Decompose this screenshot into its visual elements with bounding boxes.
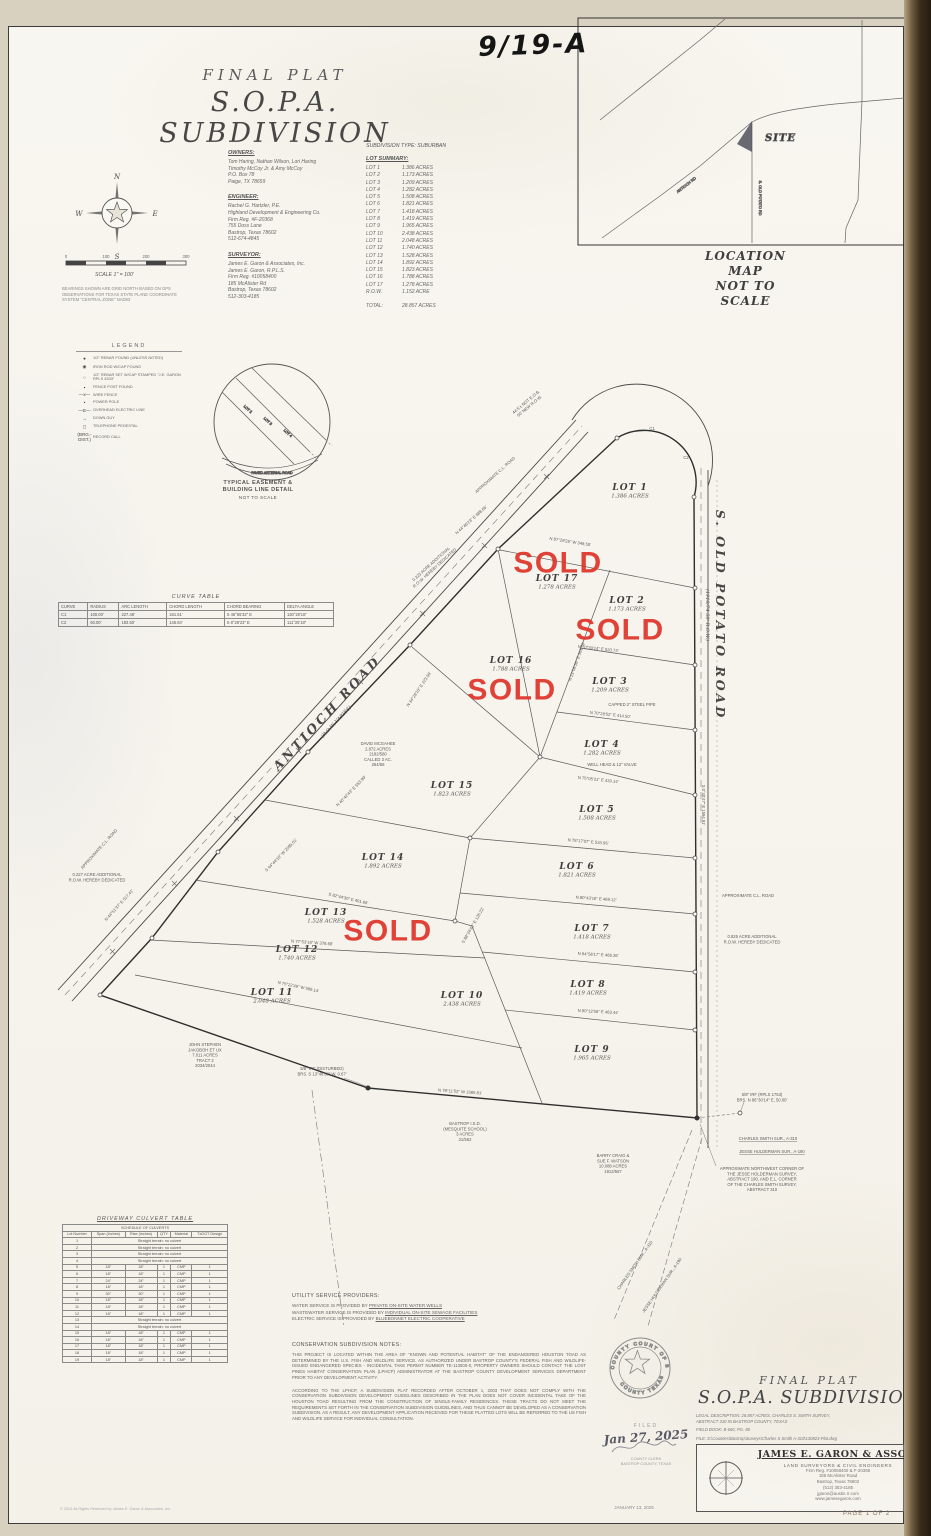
map-road-label: ANTIOCH RD <box>676 176 697 194</box>
legend-label: RECORD CALL <box>93 435 121 440</box>
curve-cell: 145.84' <box>167 619 224 627</box>
lot-summary-acres: 1.278 ACRES <box>402 282 486 289</box>
plat-annotation: DAVID MCGAHEE2.872 ACRES2182/580CALLED 3… <box>361 741 396 767</box>
culvert-cell: 18" <box>125 1343 157 1350</box>
culvert-lot-cell: 14 <box>63 1323 92 1330</box>
culvert-row: 618"18"1CMP1 <box>63 1271 228 1278</box>
utility-text: WATER SERVICE IS PROVIDED BY <box>292 1303 369 1308</box>
plat-annotation-line: 5/8" IRF (RPLS 1753) <box>742 1092 783 1097</box>
map-road-labels: ANTIOCH RDS. OLD POTATO RD <box>676 176 762 216</box>
lot-summary-row: LOT 121.740 ACRES <box>366 245 486 252</box>
utility-provider: INDIVIDUAL ON-SITE SEWAGE FACILITIES <box>385 1310 477 1315</box>
plat-annotation: 0.323 ACRE ADDITIONALR.O.W. HEREBY DEDIC… <box>408 543 457 589</box>
location-map-caption: LOCATION MAP NOT TO SCALE <box>688 249 803 309</box>
culvert-cell: 18" <box>125 1356 157 1363</box>
plat-annotation: APPROXIMATE C.L. ROAD <box>474 456 516 495</box>
culvert-cell: CMP <box>171 1330 192 1337</box>
lot-summary-lot: LOT 15 <box>366 267 402 274</box>
culvert-row: 1218"18"1CMP1 <box>63 1310 228 1317</box>
info-line: Tom Haring, Nathan Wilson, Lori Haring <box>228 159 368 166</box>
lot-summary-row: LOT 91.965 ACRES <box>366 223 486 230</box>
culvert-cell: 1 <box>192 1343 228 1350</box>
plat-annotation: 5/8" IRF (DISTURBED)BRS. S 13°48'58" W, … <box>298 1066 347 1076</box>
legend-symbol-icon: → <box>76 416 93 421</box>
legend-label: OVERHEAD ELECTRIC LINE <box>93 408 145 413</box>
plat-annotation-line: (MESQUITE SCHOOL) <box>443 1126 487 1131</box>
lot-summary-rows: LOT 11.386 ACRESLOT 21.173 ACRESLOT 31.2… <box>366 165 486 296</box>
curve-cell: S 46°55'32" E <box>224 611 284 619</box>
plat-annotation-line: 0.825 ACRE ADDITIONAL <box>727 934 777 939</box>
info-line: 512-303-4185 <box>228 294 368 301</box>
page-number: PAGE 1 OF 2 <box>843 1511 890 1517</box>
detail-lot-label: LOT 3 <box>263 416 273 426</box>
curve-cell: C1 <box>59 611 88 619</box>
lot-name: LOT 10 <box>440 991 484 1001</box>
plat-annotation-line: JOHN STEPHEN <box>189 1042 221 1047</box>
culvert-cell: 18" <box>125 1310 157 1317</box>
engineer-section: ENGINEER: Rachel G. Hartzler, P.E.Highla… <box>228 194 368 243</box>
culvert-cell: 18" <box>125 1304 157 1311</box>
lot-summary-lot: LOT 2 <box>366 172 402 179</box>
plat-annotation-line: APPROXIMATE C.L. ROAD <box>80 828 119 870</box>
plat-annotation-line: R.O.W. HEREBY DEDICATED <box>412 547 458 589</box>
culvert-table: DRIVEWAY CULVERT TABLE SCHEDULE OF CULVE… <box>62 1216 228 1363</box>
legend-item: ●1/2" REBAR FOUND (UNLESS NOTED) <box>76 356 182 361</box>
surveyor-heading: SURVEYOR: <box>228 252 368 258</box>
plat-annotation-line: APPROXIMATE C.L. ROAD <box>722 893 774 898</box>
culvert-row: 518"18"1CMP1 <box>63 1264 228 1271</box>
lot-name: LOT 13 <box>304 908 348 918</box>
plat-annotation: BARRY CRAIG &SUE F. WATSON10.088 ACRES19… <box>597 1153 630 1174</box>
compass-e: E <box>151 210 157 218</box>
plat-annotation-line: 2182/580 <box>369 752 387 757</box>
curve-cell: 183.50' <box>119 619 167 627</box>
culvert-lot-cell: 8 <box>63 1284 92 1291</box>
road-name: ANTIOCH ROAD <box>269 653 384 774</box>
lot-acreage: 2.438 ACRES <box>442 1002 481 1008</box>
info-line: James E. Garon, R.P.L.S. <box>228 268 368 275</box>
lot-summary-acres: 1.209 ACRES <box>402 180 486 187</box>
culvert-cell: 18" <box>125 1271 157 1278</box>
culvert-cell: CMP <box>171 1297 192 1304</box>
plat-annotation-line: BARRY CRAIG & <box>597 1153 630 1158</box>
lot-summary-lot: LOT 12 <box>366 245 402 252</box>
culvert-cell: 1 <box>157 1277 171 1284</box>
detail-lot-label: LOT 4 <box>283 428 293 438</box>
culvert-cell: 1 <box>192 1284 228 1291</box>
plat-annotation: CAPPED 2" STEEL PIPE <box>608 702 655 707</box>
legend-title: LEGEND <box>76 343 182 352</box>
lot-summary-acres: 1.282 ACRES <box>402 187 486 194</box>
curve-cell: C2 <box>59 619 88 627</box>
lot-summary-row: LOT 131.528 ACRES <box>366 253 486 260</box>
plat-annotation-line: CHARLES SMITH SUR., A-310 <box>616 1239 654 1290</box>
info-line: James E. Garon & Associates, Inc. <box>228 261 368 268</box>
lot-acreage: 2.048 ACRES <box>252 999 291 1005</box>
lot-summary-lot: LOT 17 <box>366 282 402 289</box>
culvert-header-cell: Lot Number <box>63 1231 92 1238</box>
curve-header-cell: DELTA ANGLE <box>285 603 334 611</box>
subdivision-type: SUBDIVISION TYPE: SUBURBAN <box>366 143 486 149</box>
lot-summary-lot: LOT 10 <box>366 231 402 238</box>
bearing-basis-note: BEARINGS SHOWN ARE GRID NORTH BASED ON G… <box>62 286 190 303</box>
plat-annotation-line: CALLED 3 AC. <box>364 757 392 762</box>
total-label: TOTAL: <box>366 303 402 310</box>
plat-annotation: 0.227 ACRE ADDITIONALR.O.W. HEREBY DEDIC… <box>69 872 126 882</box>
info-line: Highland Development & Engineering Co. <box>228 210 368 217</box>
curve-header-cell: CHORD LENGTH <box>167 603 224 611</box>
culvert-cell: 1 <box>157 1271 171 1278</box>
legend-label: 1/2" REBAR SET W/CAP STAMPED "J.E. GARON… <box>93 373 182 382</box>
lot-name: LOT 4 <box>583 740 619 750</box>
culvert-cell: 18" <box>92 1356 126 1363</box>
info-line: Bastrop, Texas 78602 <box>228 230 368 237</box>
scale-tick-label: 200 <box>143 254 151 259</box>
lot-summary-heading: LOT SUMMARY: <box>366 156 486 162</box>
culvert-cell: 24" <box>92 1277 126 1284</box>
culvert-cell: 18" <box>92 1304 126 1311</box>
culvert-cell: 18" <box>92 1310 126 1317</box>
lot-acreage: 1.418 ACRES <box>573 935 611 941</box>
plat-annotation-line: APPROXIMATE NORTHWEST CORNER OF <box>720 1166 805 1171</box>
plat-annotation-line: BRS. N 86°30'14" E, 50.00' <box>737 1097 788 1102</box>
culvert-cell: 1 <box>192 1350 228 1357</box>
lot-summary-row: LOT 51.508 ACRES <box>366 194 486 201</box>
bearing-label: N 34°28'15" E 223.58' <box>405 671 432 708</box>
owners-heading: OWNERS: <box>228 150 368 156</box>
curve-cell: 130°20'16" <box>285 611 334 619</box>
plat-annotation-line: JESSE HULDERMAN SUR., A-190 <box>641 1256 683 1313</box>
culvert-cell: 1 <box>192 1297 228 1304</box>
title-block-bottom: FINAL PLAT S.O.P.A. SUBDIVISION LEGAL DE… <box>696 1374 922 1512</box>
culvert-header-cell: Material <box>171 1231 192 1238</box>
culvert-row: 1618"18"1CMP1 <box>63 1337 228 1344</box>
lot-summary-lot: LOT 6 <box>366 201 402 208</box>
culvert-cell: 1 <box>192 1356 228 1363</box>
lot-name: LOT 7 <box>573 924 609 934</box>
road-row-note: (1910/74 50' R.O.W.) <box>704 589 711 641</box>
culvert-row: 724"24"1CMP1 <box>63 1277 228 1284</box>
plat-annotation: CHARLES SMITH SUR., A-310 <box>739 1136 798 1141</box>
legend-symbol-icon: —x— <box>76 392 93 397</box>
lot-summary-lot: LOT 5 <box>366 194 402 201</box>
culvert-cell: 1 <box>157 1337 171 1344</box>
lot-summary-lot: LOT 16 <box>366 274 402 281</box>
plat-annotation: APPROXIMATE NORTHWEST CORNER OFTHE JESSE… <box>720 1166 805 1192</box>
culvert-cell: 18" <box>92 1343 126 1350</box>
utility-line: ELECTRIC SERVICE IS PROVIDED BY BLUEBONN… <box>292 1316 584 1323</box>
culvert-lot-cell: 9 <box>63 1290 92 1297</box>
utility-provider: BLUEBONNET ELECTRIC COOPERATIVE <box>376 1316 465 1321</box>
compass-w: W <box>75 210 83 218</box>
legend-item: ▪FENCE POST FOUND <box>76 385 182 390</box>
legend-symbol-icon: ◉ <box>76 364 93 370</box>
bearing-label: S 88°24'43" E 126.22' <box>460 906 485 944</box>
culvert-cell: 18" <box>125 1297 157 1304</box>
culvert-cell: 1 <box>192 1337 228 1344</box>
road-curve-outer <box>572 384 713 486</box>
bearing-label: N 44°51'37" E 517.41' <box>103 888 134 922</box>
plat-annotation-line: ABSTRACT 310 <box>747 1187 778 1192</box>
legend-label: DOWN GUY <box>93 416 115 421</box>
lot-summary-acres: 1.152 ACRE <box>402 289 486 296</box>
curve-table-grid: CURVERADIUSARC LENGTHCHORD LENGTHCHORD B… <box>58 602 334 627</box>
culvert-cell: 24" <box>125 1277 157 1284</box>
conservation-paragraph-1: THIS PROJECT IS LOCATED WITHIN THE AREA … <box>292 1352 586 1381</box>
bearing-label: S 82°44'30" E 401.66' <box>328 892 369 906</box>
culvert-lot-cell: 18 <box>63 1350 92 1357</box>
curve-cell: 60.00' <box>88 619 119 627</box>
lot-acreage: 1.419 ACRES <box>569 991 607 997</box>
culvert-cell: 1 <box>157 1350 171 1357</box>
culvert-lot-cell: 3 <box>63 1251 92 1258</box>
plat-annotation-line: JESSE HULDERMAN SUR., A-190 <box>739 1149 805 1154</box>
culvert-cell: CMP <box>171 1304 192 1311</box>
firm-logo-cell <box>697 1445 755 1511</box>
lot-name: LOT 9 <box>573 1045 609 1055</box>
plat-annotation-line: R.O.W. HEREBY DEDICATED <box>69 877 126 882</box>
legend-symbol-icon: (BRG.-DIST.) <box>76 432 93 442</box>
culvert-note-cell: Straight terrain: no culvert <box>92 1317 228 1324</box>
lot-summary-acres: 1.419 ACRES <box>402 216 486 223</box>
plat-annotation-line: 2034/2044 <box>195 1063 215 1068</box>
culvert-note-cell: Straight terrain: no culvert <box>92 1251 228 1258</box>
culvert-cell: 1 <box>157 1284 171 1291</box>
lot-summary-row: LOT 151.823 ACRES <box>366 267 486 274</box>
surveyor-firm-box: JAMES E. GARON & ASSOC. LAND SURVEYORS &… <box>696 1444 922 1512</box>
field-book: FIELD BOOK: B-660, PG. 80 <box>696 1427 922 1433</box>
lot-summary-row: LOT 11.386 ACRES <box>366 165 486 172</box>
compass-n: N <box>113 173 121 181</box>
plat-annotation-line: 264/68 <box>372 762 385 767</box>
culvert-lot-cell: 11 <box>63 1304 92 1311</box>
plat-annotation-line: 10.088 ACRES <box>599 1164 627 1169</box>
culvert-cell: 1 <box>157 1356 171 1363</box>
lot-summary-row: LOT 141.892 ACRES <box>366 260 486 267</box>
lot-summary-acres: 1.740 ACRES <box>402 245 486 252</box>
plat-annotation: JESSE HULDERMAN SUR., A-190 <box>739 1149 805 1154</box>
firm-info: JAMES E. GARON & ASSOC. LAND SURVEYORS &… <box>755 1445 921 1511</box>
culvert-lot-cell: 12 <box>63 1310 92 1317</box>
culvert-cell: 1 <box>157 1304 171 1311</box>
legend-items: ●1/2" REBAR FOUND (UNLESS NOTED)◉IRON RO… <box>76 356 182 442</box>
lot-summary-lot: LOT 3 <box>366 180 402 187</box>
culvert-row: 1118"18"1CMP1 <box>63 1304 228 1311</box>
plat-annotation-line: 0.227 ACRE ADDITIONAL <box>72 872 122 877</box>
culvert-cell: 1 <box>157 1310 171 1317</box>
info-line: Rachel G. Hartzler, P.E. <box>228 203 368 210</box>
curve-point-label: C2 <box>683 455 689 460</box>
lot-summary-lot: LOT 11 <box>366 238 402 245</box>
compass-rose: N S E W <box>75 173 157 261</box>
culvert-subtitle-row: SCHEDULE OF CULVERTS <box>63 1225 228 1232</box>
curve-cell: 227.48' <box>119 611 167 619</box>
legal-line-2: ABSTRACT 310 IN BASTROP COUNTY, TEXAS <box>696 1419 922 1425</box>
scale-caption: SCALE 1" = 100' <box>95 272 135 278</box>
legend-item: (BRG.-DIST.)RECORD CALL <box>76 432 182 442</box>
lot-acreage: 1.740 ACRES <box>278 956 316 962</box>
culvert-cell: 30" <box>92 1290 126 1297</box>
lot-summary-lot: LOT 8 <box>366 216 402 223</box>
copyright-note: © 2024 All Rights Reserved by James E. G… <box>60 1507 171 1511</box>
tb-final-plat: FINAL PLAT <box>696 1374 922 1387</box>
info-line: 185 McAlister Rd <box>228 281 368 288</box>
county-clerk-locale: BASTROP COUNTY, TEXAS <box>590 1461 702 1466</box>
culvert-lot-cell: 1 <box>63 1238 92 1245</box>
culvert-cell: 1 <box>157 1330 171 1337</box>
plat-annotation-line: TRACT 2 <box>196 1058 214 1063</box>
legend-label: FENCE POST FOUND <box>93 385 133 390</box>
culvert-cell: 1 <box>192 1277 228 1284</box>
plat-annotation-line: SUE F. WATSON <box>597 1158 629 1163</box>
culvert-cell: 1 <box>192 1304 228 1311</box>
scanned-plat-page: SITE ANTIOCH RDS. OLD POTATO RD N S E W … <box>0 0 931 1536</box>
culvert-cell: 1 <box>157 1264 171 1271</box>
culvert-row: 14Straight terrain: no culvert <box>63 1323 228 1330</box>
lot-acreage: 1.823 ACRES <box>433 792 471 798</box>
culvert-cell: 1 <box>192 1290 228 1297</box>
lot-name: LOT 14 <box>361 853 405 863</box>
bearing-label: N 80°12'56" E 463.44' <box>578 1008 619 1015</box>
culvert-lot-cell: 17 <box>63 1343 92 1350</box>
compass-s: S <box>115 253 120 261</box>
curve-row: C1100.00'227.48'181.51'S 46°55'32" E130°… <box>59 611 334 619</box>
curve-cell: 111°25'18" <box>285 619 334 627</box>
lot-summary-acres: 1.418 ACRES <box>402 209 486 216</box>
plat-annotation: 5/8" IRF (RPLS 1753)BRS. N 86°30'14" E, … <box>737 1092 788 1102</box>
easement-caption-2: BUILDING LINE DETAIL <box>196 487 320 494</box>
curve-point-label: C1 <box>649 426 655 431</box>
culvert-note-cell: Straight terrain: no culvert <box>92 1244 228 1251</box>
plat-annotation: APPROXIMATE C.L. ROAD <box>722 893 774 898</box>
conservation-notes: CONSERVATION SUBDIVISION NOTES: THIS PRO… <box>292 1342 586 1429</box>
lot-acreage: 1.278 ACRES <box>538 585 576 591</box>
lot-summary-acres: 1.508 ACRES <box>402 194 486 201</box>
filed-stamp: FILED Jan 27, 2025 COUNTY CLERK BASTROP … <box>590 1423 702 1466</box>
culvert-cell: 18" <box>125 1264 157 1271</box>
plat-annotation-line: 5/8" IRF (DISTURBED) <box>300 1066 344 1071</box>
culvert-cell: 18" <box>125 1330 157 1337</box>
culvert-table-grid: SCHEDULE OF CULVERTS Lot NumberSpan (inc… <box>62 1224 228 1363</box>
culvert-note-cell: Straight terrain: no culvert <box>92 1257 228 1264</box>
culvert-row: 1918"18"1CMP1 <box>63 1356 228 1363</box>
plat-annotation: JOHN STEPHENJAKOBOH ET UX7.011 ACRESTRAC… <box>188 1042 222 1068</box>
info-line: Timothy McCoy Jr. & Amy McCoy <box>228 166 368 173</box>
scale-tick-label: 300 <box>183 254 191 259</box>
culvert-cell: 1 <box>192 1271 228 1278</box>
culvert-cell: 18" <box>125 1350 157 1357</box>
lot-name: LOT 6 <box>558 862 594 872</box>
culvert-cell: 1 <box>157 1343 171 1350</box>
culvert-header-cell: TxDOT Design <box>192 1231 228 1238</box>
culvert-cell: 30" <box>125 1290 157 1297</box>
culvert-cell: 18" <box>92 1284 126 1291</box>
culvert-cell: CMP <box>171 1356 192 1363</box>
curve-header-cell: ARC LENGTH <box>119 603 167 611</box>
plat-annotation-line: JAKOBOH ET UX <box>188 1047 222 1052</box>
lot-acreage: 1.386 ACRES <box>611 494 649 500</box>
curve-table-title: CURVE TABLE <box>58 594 334 600</box>
legend-item: →DOWN GUY <box>76 416 182 421</box>
culvert-cell: 1 <box>192 1310 228 1317</box>
culvert-row: 930"30"1CMP1 <box>63 1290 228 1297</box>
site-label: SITE <box>765 133 796 144</box>
bearing-label: N 44°46'23" E 688.66' <box>454 504 488 535</box>
lot-summary-row: LOT 61.821 ACRES <box>366 201 486 208</box>
culvert-lot-cell: 13 <box>63 1317 92 1324</box>
lot-summary-acres: 1.965 ACRES <box>402 223 486 230</box>
bearing-label: N 78°17'07" E 533.95' <box>568 837 609 846</box>
culvert-cell: CMP <box>171 1271 192 1278</box>
culvert-row: 818"18"1CMP1 <box>63 1284 228 1291</box>
culvert-header-cell: QTY <box>157 1231 171 1238</box>
culvert-cell: CMP <box>171 1337 192 1344</box>
plat-annotation-line: WELL HEAD & 12" VALVE <box>587 762 637 767</box>
lot-name: LOT 2 <box>608 596 644 606</box>
easement-detail-drawing: LOT 2LOT 3LOT 4 PAVED ARTERIAL ROAD <box>214 364 332 480</box>
plat-annotation-line: 1912/567 <box>604 1169 622 1174</box>
lot-summary-row: LOT 171.278 ACRES <box>366 282 486 289</box>
lot-summary-lot: LOT 9 <box>366 223 402 230</box>
culvert-header-cell: Rise (inches) <box>125 1231 157 1238</box>
lot-name: LOT 5 <box>578 805 614 815</box>
culvert-cell: CMP <box>171 1277 192 1284</box>
culvert-lot-cell: 15 <box>63 1330 92 1337</box>
curve-table-body: C1100.00'227.48'181.51'S 46°55'32" E130°… <box>59 611 334 627</box>
legend-item: —E—OVERHEAD ELECTRIC LINE <box>76 408 182 413</box>
site-marker <box>737 121 752 152</box>
engineer-lines: Rachel G. Hartzler, P.E.Highland Develop… <box>228 203 368 243</box>
culvert-cell: 18" <box>125 1337 157 1344</box>
utility-text: WASTEWATER SERVICE IS PROVIDED BY <box>292 1310 385 1315</box>
culvert-subtitle: SCHEDULE OF CULVERTS <box>63 1225 228 1232</box>
curve-cell: 181.51' <box>167 611 224 619</box>
bearing-labels: N 44°46'23" E 688.66'S 44°44'16" W 2095.… <box>103 504 706 1095</box>
lot-summary-row: LOT 161.788 ACRES <box>366 274 486 281</box>
plat-geometry: ANTIOCH ROAD(R.O.W. VARIES)S. OLD POTATO… <box>58 384 805 1328</box>
curve-row: C260.00'183.50'145.84'S 8°28'23" E111°25… <box>59 619 334 627</box>
info-line: 512-674-4845 <box>228 236 368 243</box>
culvert-cell: 18" <box>92 1350 126 1357</box>
legend-item: ○1/2" REBAR SET W/CAP STAMPED "J.E. GARO… <box>76 373 182 382</box>
culvert-row: 3Straight terrain: no culvert <box>63 1251 228 1258</box>
plat-annotation: JESSE HULDERMAN SUR., A-190 <box>641 1256 683 1313</box>
location-map-caption-2: NOT TO SCALE <box>688 279 803 309</box>
plat-annotation: WELL HEAD & 12" VALVE <box>587 762 637 767</box>
conservation-paragraph-2: ACCORDING TO THE LPHCP, A SUBDIVISION PL… <box>292 1388 586 1422</box>
legend-symbol-icon: ▪ <box>76 385 93 390</box>
plat-annotation-line: 3 ACRES <box>456 1132 474 1137</box>
info-line: Bastrop, Texas 78602 <box>228 287 368 294</box>
scan-edge-shadow <box>904 0 931 1536</box>
curve-cell: S 8°28'23" E <box>224 619 284 627</box>
scale-tick-label: 100 <box>103 254 111 259</box>
plat-annotation: APPROXIMATE C.L. ROAD <box>80 828 119 870</box>
lot-acreage: 1.528 ACRES <box>307 919 345 925</box>
culvert-lot-cell: 16 <box>63 1337 92 1344</box>
utilities-heading: UTILITY SERVICE PROVIDERS: <box>292 1293 584 1299</box>
lot-name: LOT 15 <box>430 781 474 791</box>
owners-lines: Tom Haring, Nathan Wilson, Lori HaringTi… <box>228 159 368 185</box>
legend: LEGEND ●1/2" REBAR FOUND (UNLESS NOTED)◉… <box>76 343 182 445</box>
lot-name: LOT 3 <box>591 677 627 687</box>
culvert-row: 1018"18"1CMP1 <box>63 1297 228 1304</box>
culvert-note-cell: Straight terrain: no culvert <box>92 1238 228 1245</box>
final-plat-label: FINAL PLAT <box>90 66 460 84</box>
culvert-cell: CMP <box>171 1343 192 1350</box>
lot-summary-lot: LOT 4 <box>366 187 402 194</box>
firm-web: www.jamesegaron.com <box>755 1496 921 1502</box>
